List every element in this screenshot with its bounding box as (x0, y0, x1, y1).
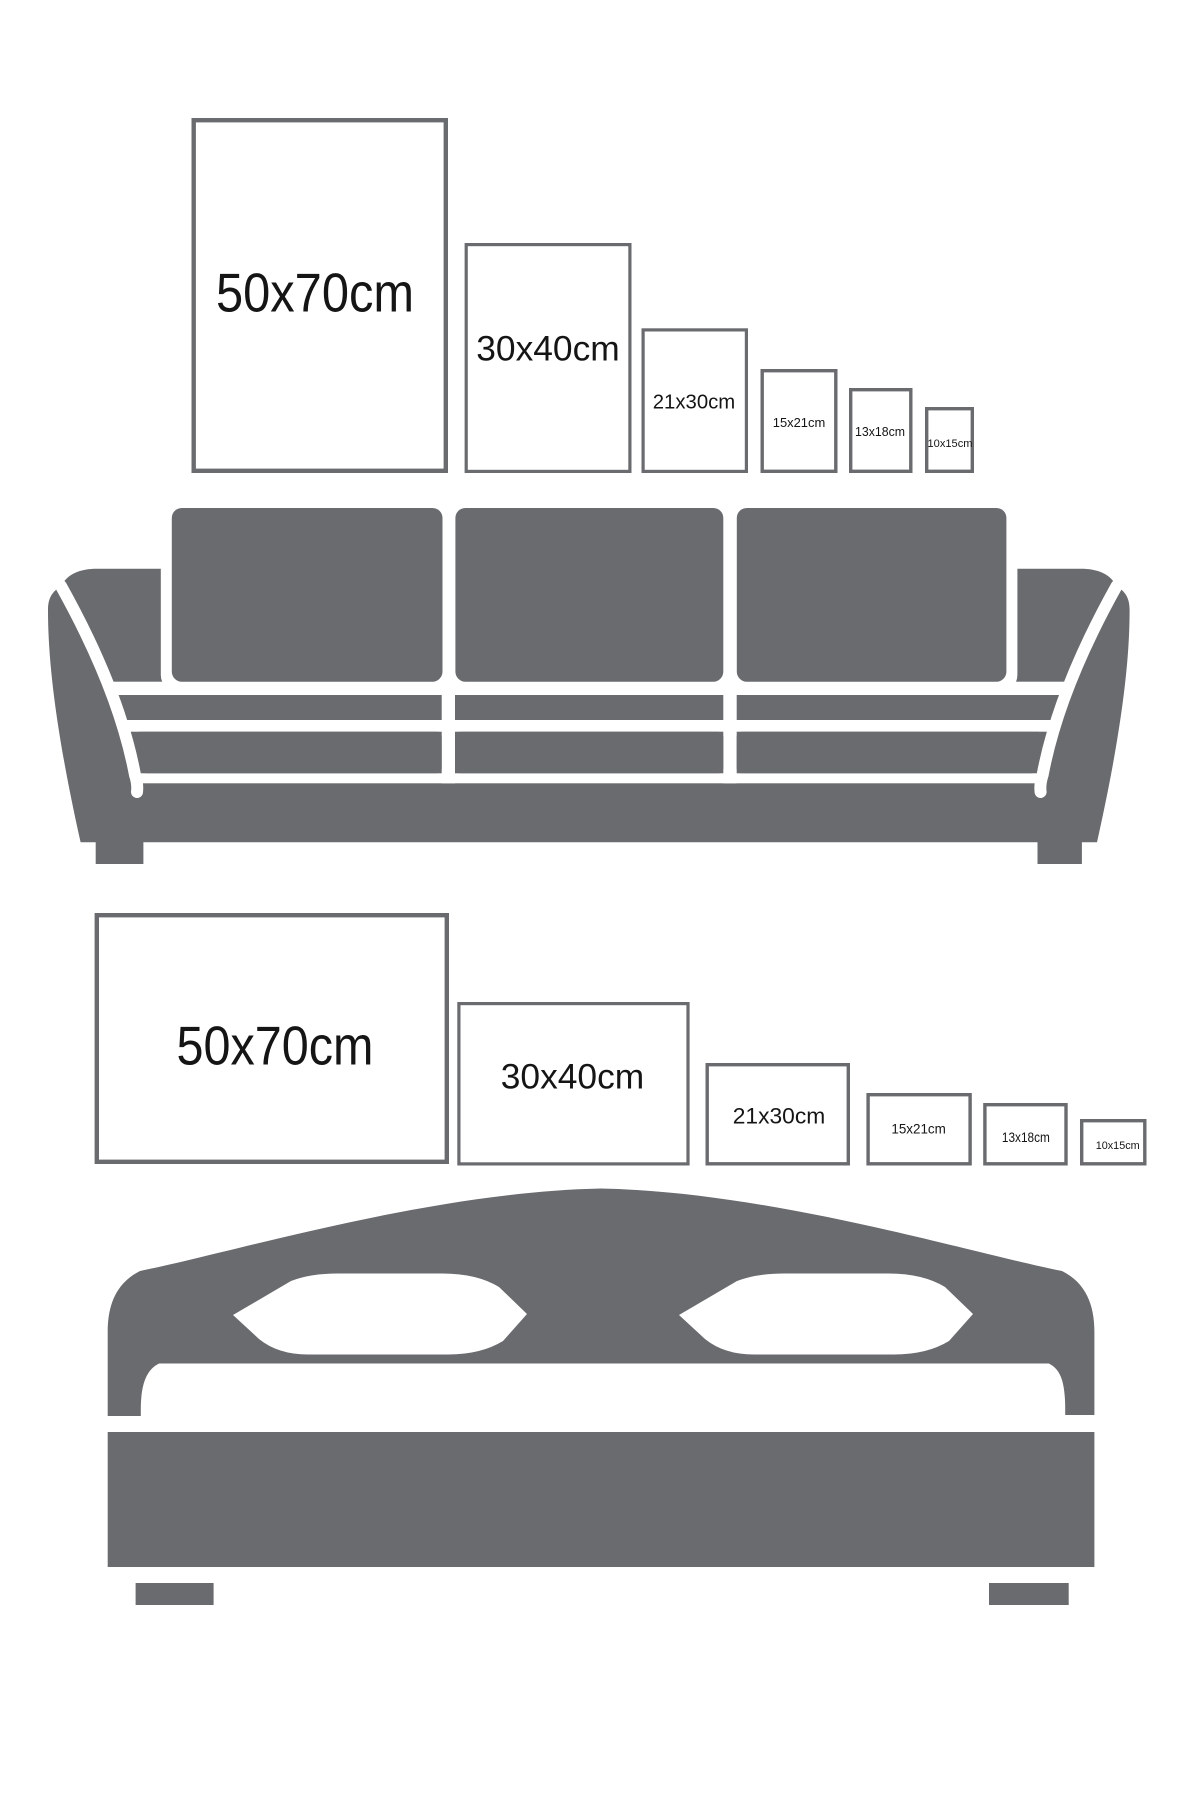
svg-text:13x18cm: 13x18cm (855, 424, 905, 439)
svg-text:10x15cm: 10x15cm (928, 438, 973, 450)
svg-text:50x70cm: 50x70cm (177, 1015, 374, 1076)
svg-text:21x30cm: 21x30cm (653, 391, 736, 413)
svg-text:13x18cm: 13x18cm (1002, 1130, 1050, 1145)
svg-text:15x21cm: 15x21cm (891, 1121, 946, 1137)
svg-text:21x30cm: 21x30cm (733, 1104, 826, 1129)
svg-text:15x21cm: 15x21cm (773, 415, 826, 430)
svg-text:50x70cm: 50x70cm (216, 262, 414, 323)
svg-text:30x40cm: 30x40cm (476, 330, 620, 369)
svg-text:30x40cm: 30x40cm (501, 1058, 645, 1097)
svg-text:10x15cm: 10x15cm (1096, 1140, 1140, 1152)
